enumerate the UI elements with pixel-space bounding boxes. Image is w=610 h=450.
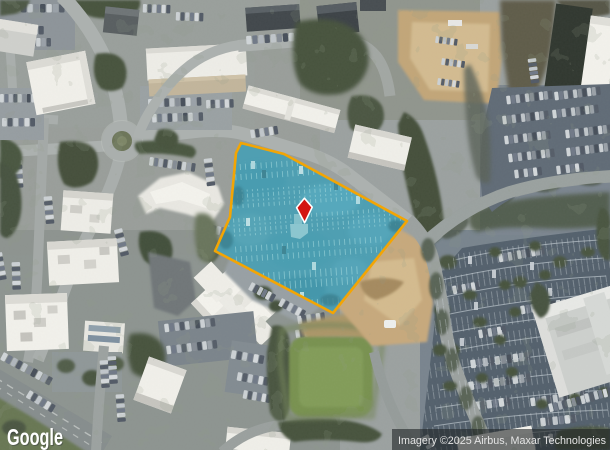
svg-text:Google: Google <box>7 424 63 450</box>
svg-text:Imagery ©2025 Airbus, Maxar Te: Imagery ©2025 Airbus, Maxar Technologies <box>398 435 606 447</box>
